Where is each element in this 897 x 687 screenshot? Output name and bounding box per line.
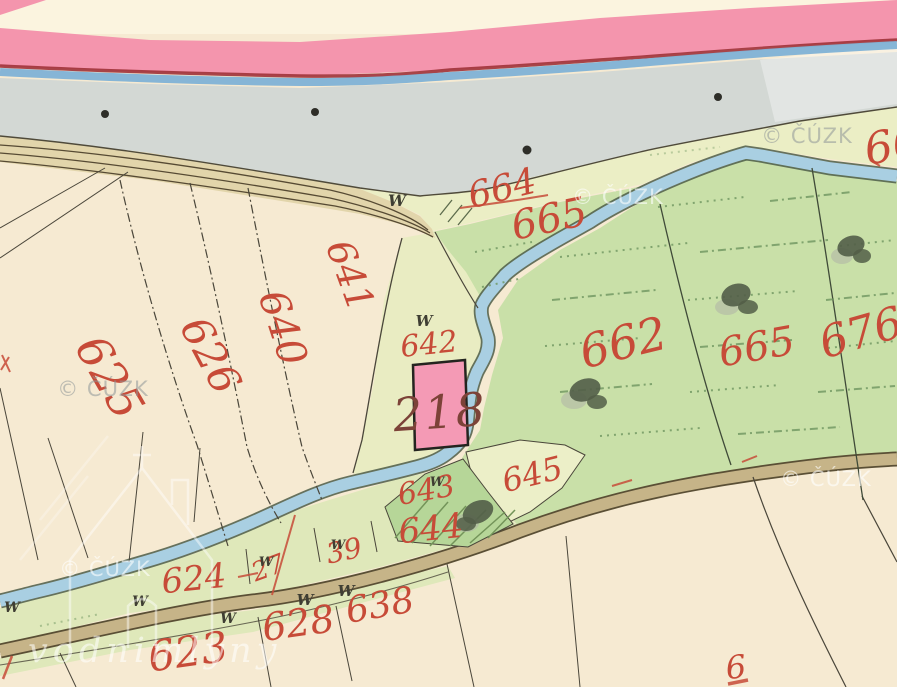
parcel-label-644: 644 (396, 506, 465, 553)
meadow-symbol-W: W (220, 611, 237, 627)
watermark-cuzk: © ČÚZK (59, 556, 151, 581)
meadow-symbol-W: W (297, 591, 316, 609)
house-number-218: 218 (390, 382, 488, 442)
watermark-cuzk: © ČÚZK (780, 466, 872, 491)
meadow-symbol-W: W (416, 312, 435, 330)
cadastral-map: 625 626 640 641 642 643 644 645 664 665 … (0, 0, 897, 687)
watermark-cuzk: © ČÚZK (761, 123, 853, 148)
tree-crown (738, 300, 758, 314)
map-canvas: 625 626 640 641 642 643 644 645 664 665 … (0, 0, 897, 687)
parcel-label-624: 624 (159, 556, 228, 603)
survey-dot (714, 93, 722, 101)
tree-crown (853, 249, 871, 263)
watermark-cuzk: © ČÚZK (57, 376, 149, 401)
meadow-symbol-W: W (430, 475, 446, 490)
meadow-symbol-W: W (338, 582, 357, 600)
survey-dot (311, 108, 319, 116)
survey-dot (523, 146, 532, 155)
tree-crown (587, 395, 607, 409)
survey-dot (101, 110, 109, 118)
meadow-symbol-W: W (259, 555, 275, 570)
meadow-symbol-W: W (388, 191, 408, 210)
meadow-symbol-W: W (4, 600, 21, 616)
watermark-mills-text: vodnimlyny (28, 631, 281, 671)
meadow-symbol-W: W (331, 538, 347, 553)
watermark-cuzk: © ČÚZK (572, 184, 664, 209)
parcel-label-642: 642 (399, 324, 460, 365)
